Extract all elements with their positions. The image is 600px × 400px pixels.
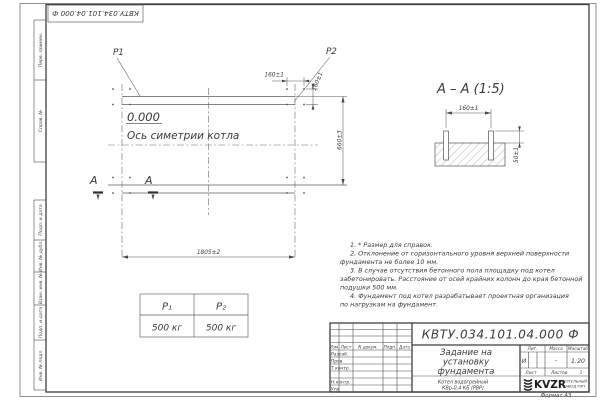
axis-symmetry-label: Ось симетрии котла [127, 130, 239, 142]
stamp-inv-podl: Инв. № подл. [38, 349, 44, 381]
dim-660-label: 660±3 [338, 130, 344, 150]
section-cut-marks: А А [89, 174, 158, 200]
drawing-canvas: Перв. примен. Справ. № Подп. и дата Инв.… [0, 0, 600, 400]
load-table-value-p1: 500 кг [152, 324, 182, 334]
section-view-title: А – А (1:5) [436, 82, 505, 97]
dim-160-side-label: 160±1 [312, 71, 325, 91]
tb-title-line-1: Задание на [440, 348, 492, 358]
load-table: P₁ P₂ 500 кг 500 кг [140, 294, 248, 337]
note-line-2: 2. Отклонение от горизонтального уровня … [350, 250, 569, 258]
note-line-4: 3. В случае отсутствия бетонного пола пл… [350, 267, 555, 275]
title-block: Изм. Лист N докум. Подп. Дата Разраб. Пр… [330, 323, 589, 399]
tb-col-ndokum: N докум. [358, 345, 377, 350]
plan-view: P1 P2 0.000 Ось симетрии котла 160±1 160… [89, 47, 347, 259]
load-table-header-p1: P₁ [162, 302, 172, 313]
tb-row-tkontr: Т.контр. [331, 366, 350, 372]
note-line-3: фундамента не более 10 мм. [340, 258, 438, 266]
anchor-stud-left [444, 131, 449, 160]
top-docnumber-box: КВТУ.034.101.04.000 Ф [48, 5, 143, 22]
dim-160-top: 160±1 [264, 73, 311, 87]
tb-scale-value: 1:20 [571, 358, 585, 365]
tb-doc-number: КВТУ.034.101.04.000 Ф [422, 328, 579, 342]
load-table-header-p2: P₂ [216, 302, 226, 313]
kvzr-coil-icon [524, 380, 532, 391]
tb-mass-label: Масса [549, 346, 563, 351]
note-line-6: подушки 500 мм. [340, 284, 398, 292]
top-docnumber-text: КВТУ.034.101.04.000 Ф [52, 9, 139, 18]
tb-sheets-label: Листов [550, 370, 568, 376]
tb-col-data: Дата [398, 345, 410, 350]
tb-row-utv: Утв. [331, 387, 340, 393]
tb-lit-label: Лит. [527, 346, 538, 351]
tb-row-nkontr: Н.контр. [331, 380, 351, 386]
level-mark: 0.000 [127, 110, 160, 124]
tb-company-logo: KVZR [534, 379, 566, 391]
stamp-podp-data-2: Подп. и дата [38, 307, 44, 338]
stamp-sprav-n: Справ. № [38, 110, 44, 133]
tb-sheets-value: 1 [580, 370, 583, 376]
note-line-5: забетонировать. Расстояние от осей крайн… [340, 275, 582, 283]
anchor-stud-right [489, 131, 494, 160]
load-table-value-p2: 500 кг [206, 324, 236, 334]
p2-leader-line [294, 57, 330, 102]
note-line-7: 4. Фундамент под котел разрабатывает про… [350, 292, 569, 300]
p2-label: P2 [326, 47, 337, 57]
tb-company-line-2: ЗАВОД РЭП [563, 385, 585, 389]
section-dim-160-label: 160±1 [459, 106, 479, 112]
drawing-sheet: Перв. примен. Справ. № Подп. и дата Инв.… [0, 0, 600, 400]
dim-160-top-label: 160±1 [264, 73, 284, 79]
tb-row-razrab: Разраб. [331, 352, 348, 358]
tb-col-izm: Изм. [330, 345, 340, 350]
dim-160-side: 160±1 [306, 71, 325, 110]
p1-label: P1 [113, 48, 124, 58]
dim-1805-label: 1805±2 [197, 250, 221, 256]
tb-scale-label: Масштаб [568, 346, 588, 351]
section-letter-2: А [144, 174, 153, 187]
tb-mass-value: - [555, 358, 557, 365]
notes: 1. * Размер для справок. 2. Отклонение о… [340, 241, 582, 309]
tb-title-line-2: установку [442, 358, 490, 368]
p1-leader-line [117, 58, 140, 96]
left-margin-stamps: Перв. примен. Справ. № Подп. и дата Инв.… [34, 20, 46, 390]
tb-sheet-label: Лист [524, 370, 537, 376]
tb-col-list: Лист [340, 345, 352, 350]
tb-lit-value: И [522, 358, 527, 365]
tb-col-podp: Подп. [384, 345, 397, 350]
section-dim-160: 160±1 [446, 106, 491, 128]
section-view: А – А (1:5) 160±1 50±1 [435, 82, 524, 166]
tb-product-line-2: КВр-0,4 КБ (РВР) [442, 386, 484, 392]
tb-row-prov: Пров. [331, 359, 344, 365]
stamp-vzam-inv: Взам. инв. № [38, 273, 44, 304]
note-line-8: по нагрузкам на фундамент. [340, 301, 438, 309]
tb-product-line-1: Котел водогрейный [438, 380, 488, 386]
tb-company-line-1: КОТЕЛЬНЫЙ [563, 379, 587, 384]
tb-format-label: Формат А3 [541, 393, 572, 399]
stamp-podp-data-1: Подп. и дата [38, 204, 44, 235]
section-letter-1: А [89, 174, 98, 187]
dim-660: 660±3 [338, 97, 345, 186]
note-line-1: 1. * Размер для справок. [350, 241, 433, 249]
dim-1805: 1805±2 [122, 250, 295, 259]
stamp-inv-dubl: Инв. № дубл. [38, 240, 44, 271]
stamp-perv-primen: Перв. примен. [38, 33, 44, 68]
tb-title-line-3: фундамента [438, 367, 495, 377]
section-dim-50-label: 50±1 [514, 147, 520, 163]
